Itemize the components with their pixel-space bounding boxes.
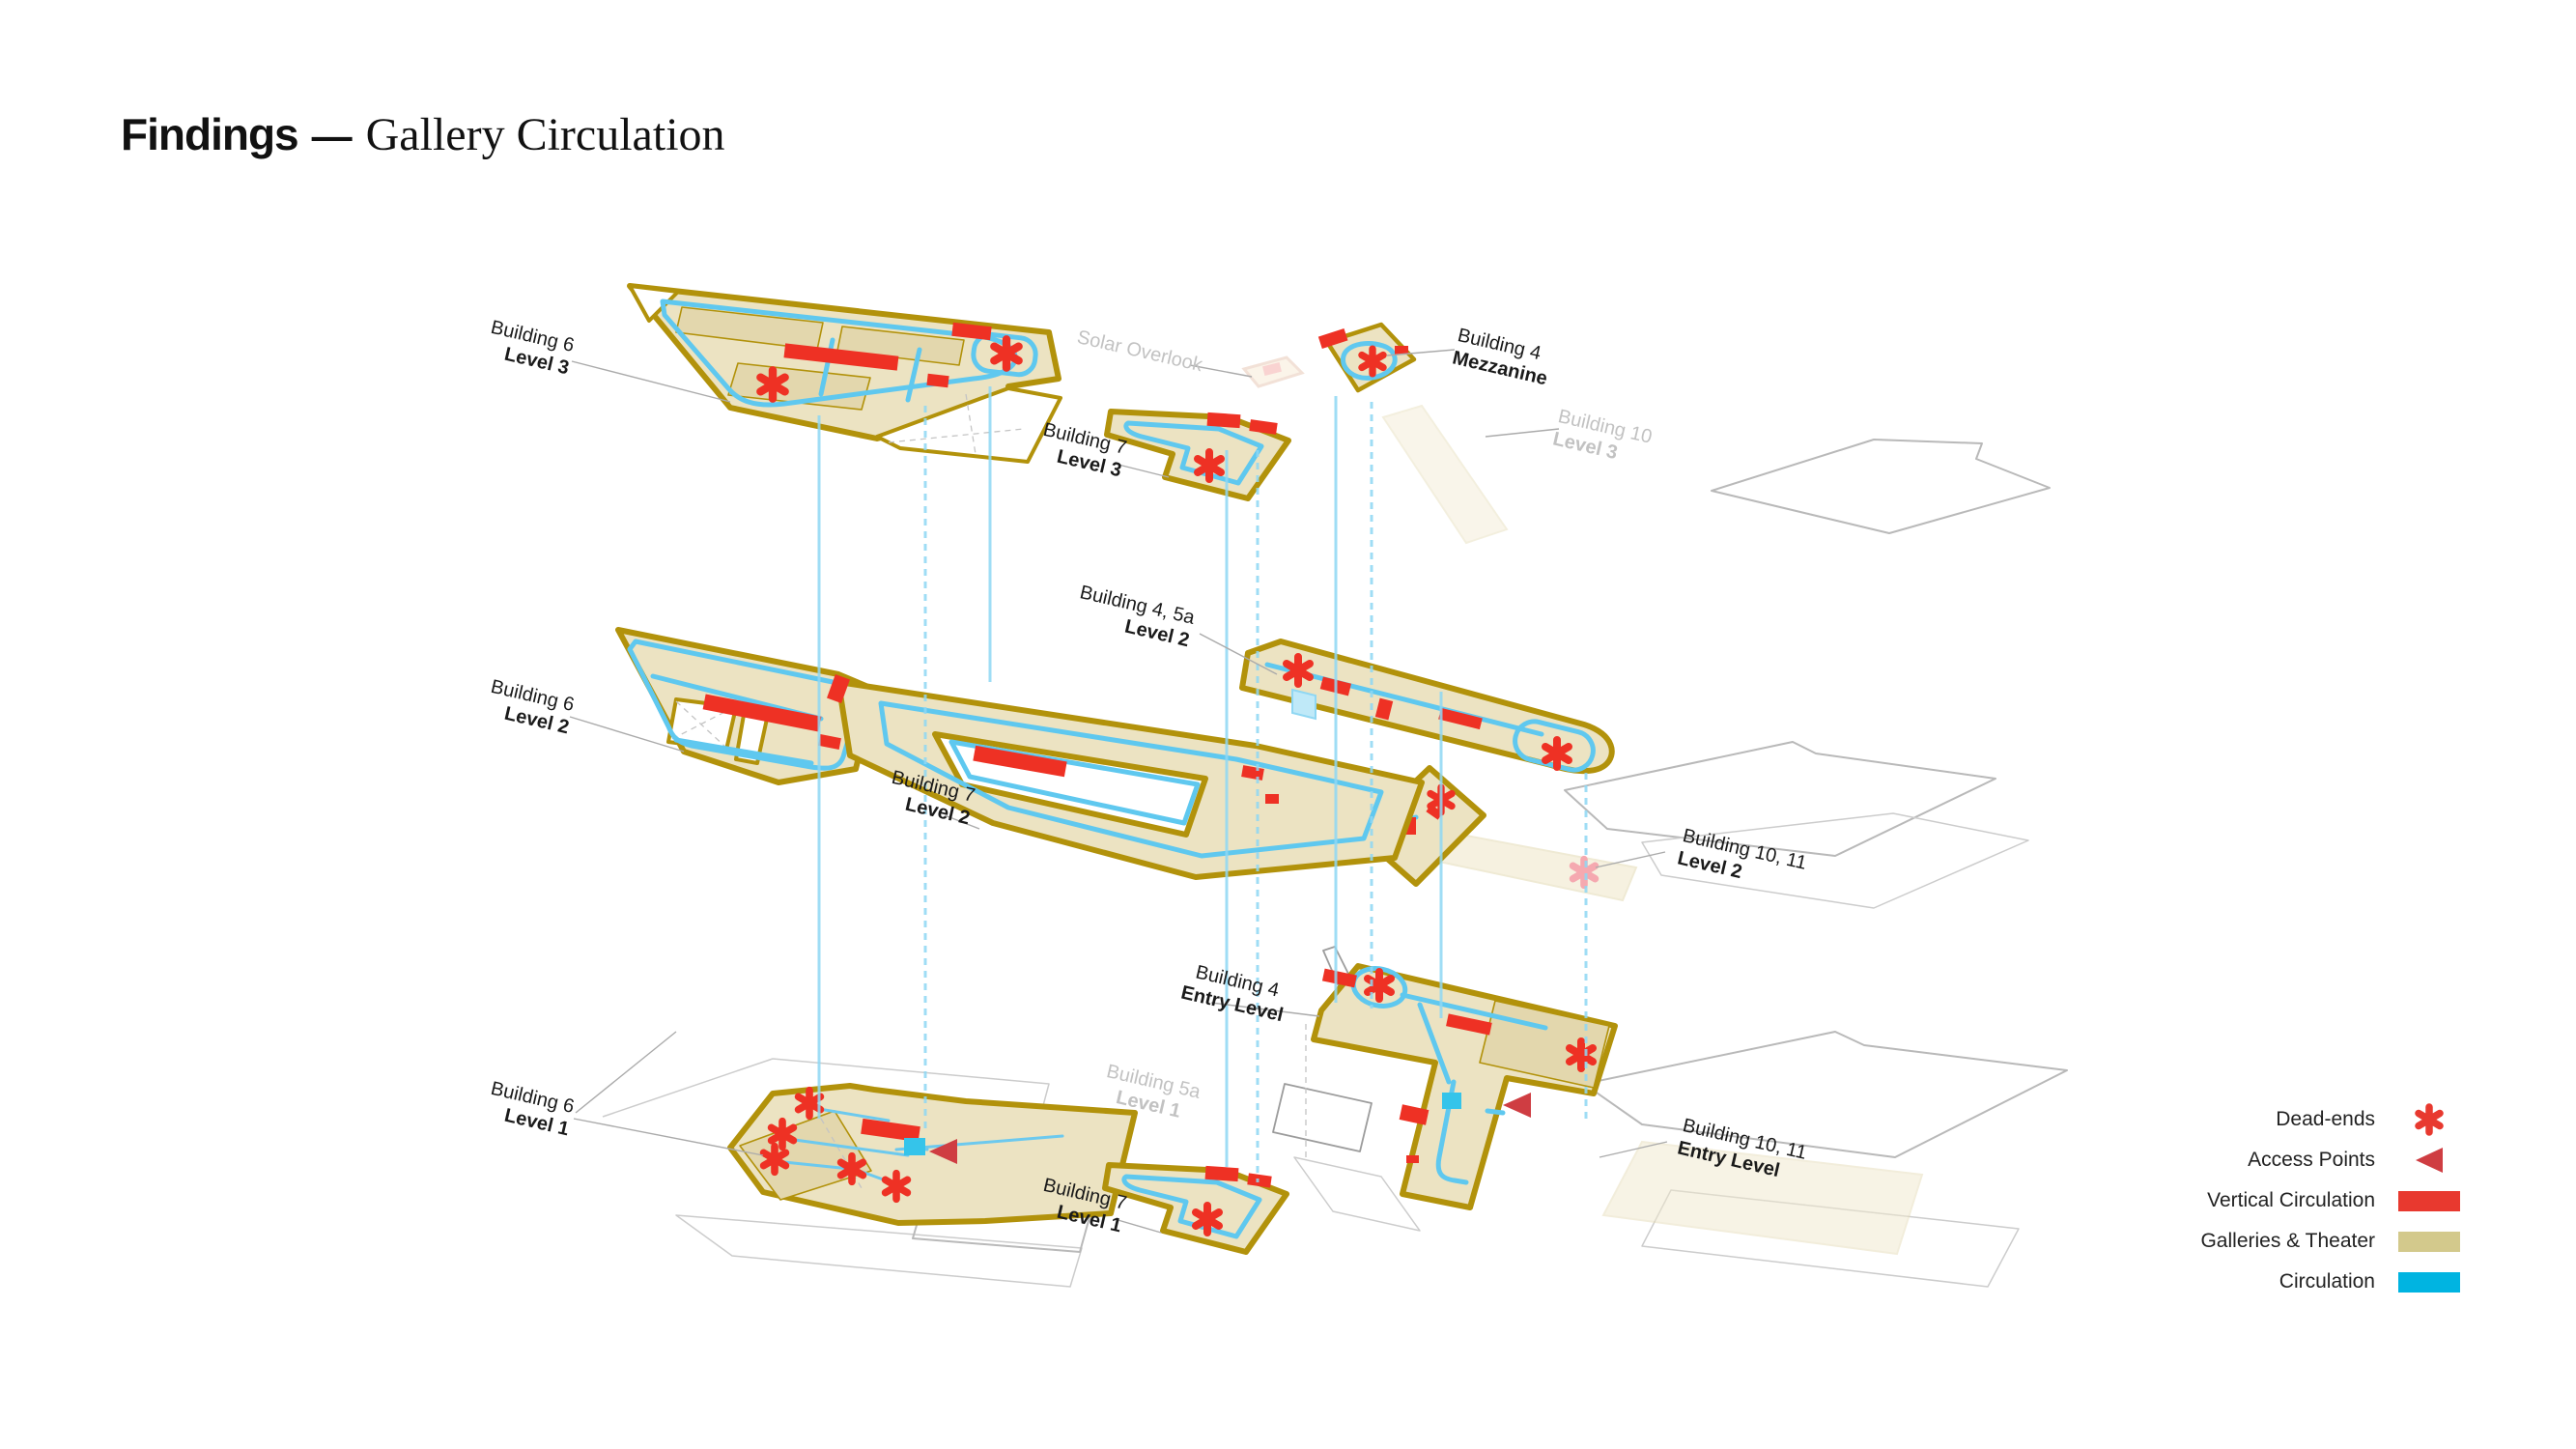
vertical-circulation-bar: [926, 374, 948, 387]
legend: Dead-ends Access Points Vertical Circula…: [2200, 1099, 2460, 1302]
plate-building-7-level-3: [1107, 412, 1288, 498]
circulation-swatch: [2398, 1272, 2460, 1293]
plate-building-7-level-1: [1105, 1165, 1287, 1252]
galleries-theater-swatch: [2398, 1232, 2460, 1252]
stair-landing: [1442, 1093, 1461, 1109]
vertical-circulation-bar: [1207, 412, 1241, 428]
legend-row-vertical-circulation: Vertical Circulation: [2200, 1180, 2460, 1221]
vertical-circulation-bar: [1265, 794, 1279, 804]
vertical-circulation-bar: [1406, 1155, 1419, 1163]
vertical-circulation-bar: [1205, 1166, 1239, 1181]
stair-prism: [1292, 690, 1316, 719]
building-10-level-3-outline: [1712, 440, 2050, 533]
label-leader-line: [574, 1119, 763, 1155]
faded-strip-level-3: [1383, 406, 1507, 543]
dead-end-asterisk-icon: [2398, 1105, 2460, 1134]
gallery-circulation-diagram: [0, 0, 2576, 1449]
label-leader-line: [1486, 429, 1559, 437]
legend-row-circulation: Circulation: [2200, 1262, 2460, 1302]
plate-building-4-mezzanine: [1318, 325, 1414, 390]
legend-row-dead-ends: Dead-ends: [2200, 1099, 2460, 1140]
label-leader-line: [1115, 464, 1169, 477]
legend-row-access-points: Access Points: [2200, 1140, 2460, 1180]
building-10-11-entry-outline: [1584, 1032, 2067, 1157]
building-5a-level-1-outline: [1273, 1084, 1372, 1151]
access-point-marker: [1503, 1093, 1531, 1118]
label-leader-line: [576, 1032, 676, 1113]
plate-building-6-level-3: [630, 286, 1061, 462]
plate-solar-overlook: [1244, 357, 1302, 386]
legend-row-galleries-theater: Galleries & Theater: [2200, 1221, 2460, 1262]
building-6-level-1-ground-outline-b: [676, 1215, 1082, 1287]
access-point-triangle-icon: [2398, 1146, 2460, 1175]
faded-plate-level-2: [1439, 833, 1636, 900]
vertical-circulation-swatch: [2398, 1191, 2460, 1211]
plate-building-6-level-2: [618, 630, 875, 782]
building-10-11-level-2-outline: [1565, 742, 1996, 856]
stair-landing: [904, 1138, 925, 1155]
